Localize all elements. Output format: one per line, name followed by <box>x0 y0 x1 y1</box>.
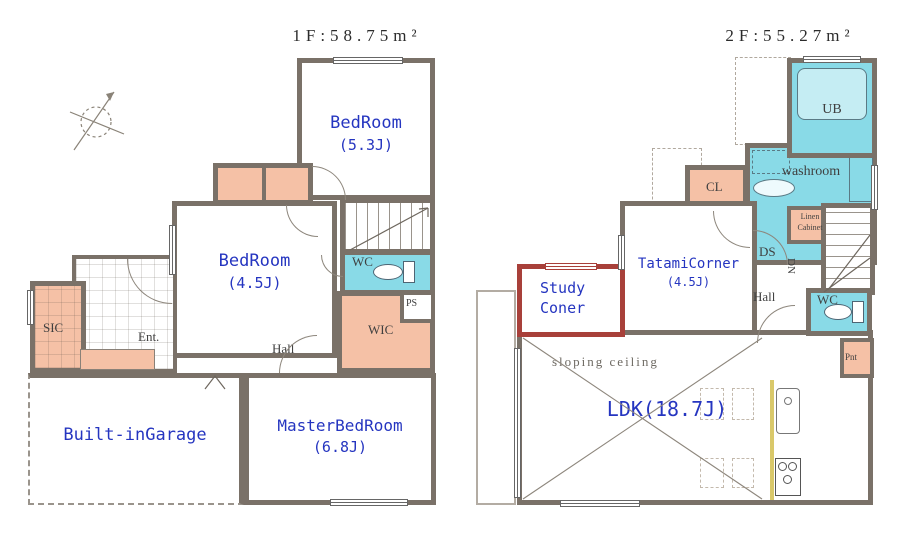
room-area: (4.5J) <box>227 274 281 292</box>
room-name: BedRoom <box>219 251 291 271</box>
label-sic: SIC <box>43 320 63 336</box>
label-wc-2f: WC <box>817 292 838 308</box>
label-bedroom-5-3: BedRoom (5.3J) <box>300 112 432 156</box>
window-mark <box>333 57 403 64</box>
staircase-2f <box>821 203 875 295</box>
linen-line1: Linen <box>801 212 820 221</box>
label-garage: Built-inGarage <box>30 424 240 446</box>
faucet-icon <box>784 397 792 405</box>
sink-icon <box>753 179 795 197</box>
door-arc <box>757 305 795 343</box>
window-mark <box>514 348 521 498</box>
room-name: BedRoom <box>330 113 402 133</box>
label-hall-2f: Hall <box>753 289 775 305</box>
dining-furniture-dashed <box>700 458 724 488</box>
floor1-title: 1F:58.75m² <box>262 26 452 46</box>
label-cl: CL <box>706 179 723 195</box>
window-mark <box>803 56 861 63</box>
floor-plan-canvas: 1F:58.75m² 2F:55.27m² BedRoom (5.3J) Bed… <box>0 0 900 554</box>
room-name: TatamiCorner <box>638 256 739 272</box>
label-pantry: Pnt <box>845 352 857 362</box>
label-tatami-corner: TatamiCorner (4.5J) <box>622 255 755 291</box>
label-master-bedroom: MasterBedRoom (6.8J) <box>246 416 434 458</box>
burner-icon <box>788 462 797 471</box>
room-area: (4.5J) <box>667 275 710 289</box>
closet-divider <box>262 168 266 200</box>
dining-furniture-dashed <box>732 458 754 488</box>
window-mark <box>545 263 597 270</box>
room-name: MasterBedRoom <box>277 416 402 435</box>
label-ub: UB <box>789 102 875 118</box>
label-ps: PS <box>406 298 417 309</box>
staircase-1f <box>340 198 435 254</box>
study-line2: Coner <box>540 299 585 317</box>
label-ldk: LDK(18.7J) <box>572 396 762 422</box>
label-entrance: Ent. <box>138 329 159 345</box>
study-line1: Study <box>540 279 585 297</box>
closet-bedroom45 <box>213 163 313 205</box>
label-wic: WIC <box>368 322 393 338</box>
label-wc-1f: WC <box>352 254 373 270</box>
shoe-cabinet <box>80 349 155 370</box>
window-mark <box>330 499 408 506</box>
label-sloping-ceiling: sloping ceiling <box>552 354 692 370</box>
burner-icon <box>778 462 787 471</box>
balcony-outline <box>476 290 516 505</box>
burner-icon <box>783 475 792 484</box>
kitchen-counter-edge <box>770 380 774 500</box>
floor2-title: 2F:55.27m² <box>690 26 890 46</box>
label-washroom: washroom <box>747 164 875 180</box>
linen-line2: Cabinet <box>798 223 823 232</box>
room-area: (5.3J) <box>339 136 393 154</box>
label-linen-cabinet: Linen Cabinet <box>791 211 829 233</box>
window-mark <box>27 290 34 325</box>
kitchen-sink-icon <box>776 388 800 434</box>
toilet-tank-icon <box>852 301 864 323</box>
roof-outline-dashed <box>735 57 791 145</box>
toilet-tank-icon <box>403 261 415 283</box>
window-mark <box>560 500 640 507</box>
stove-icon <box>775 458 801 496</box>
compass-icon <box>70 92 124 150</box>
label-bedroom-4-5: BedRoom (4.5J) <box>177 250 332 294</box>
room-area: (6.8J) <box>313 438 367 456</box>
toilet-icon <box>373 264 403 280</box>
label-study-corner: Study Coner <box>540 279 585 318</box>
